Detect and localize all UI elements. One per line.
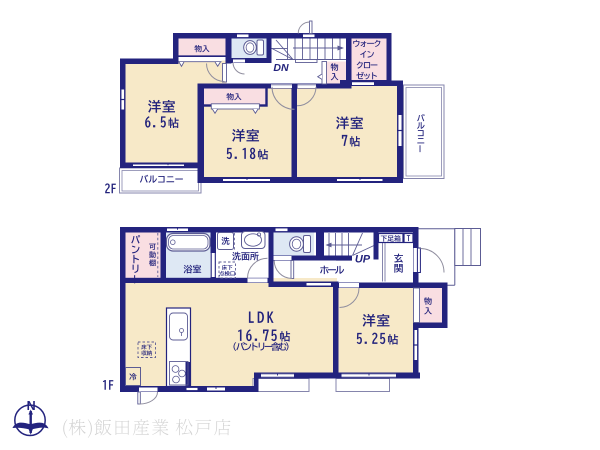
svg-text:DN: DN <box>273 62 289 74</box>
svg-text:UP: UP <box>355 254 371 266</box>
